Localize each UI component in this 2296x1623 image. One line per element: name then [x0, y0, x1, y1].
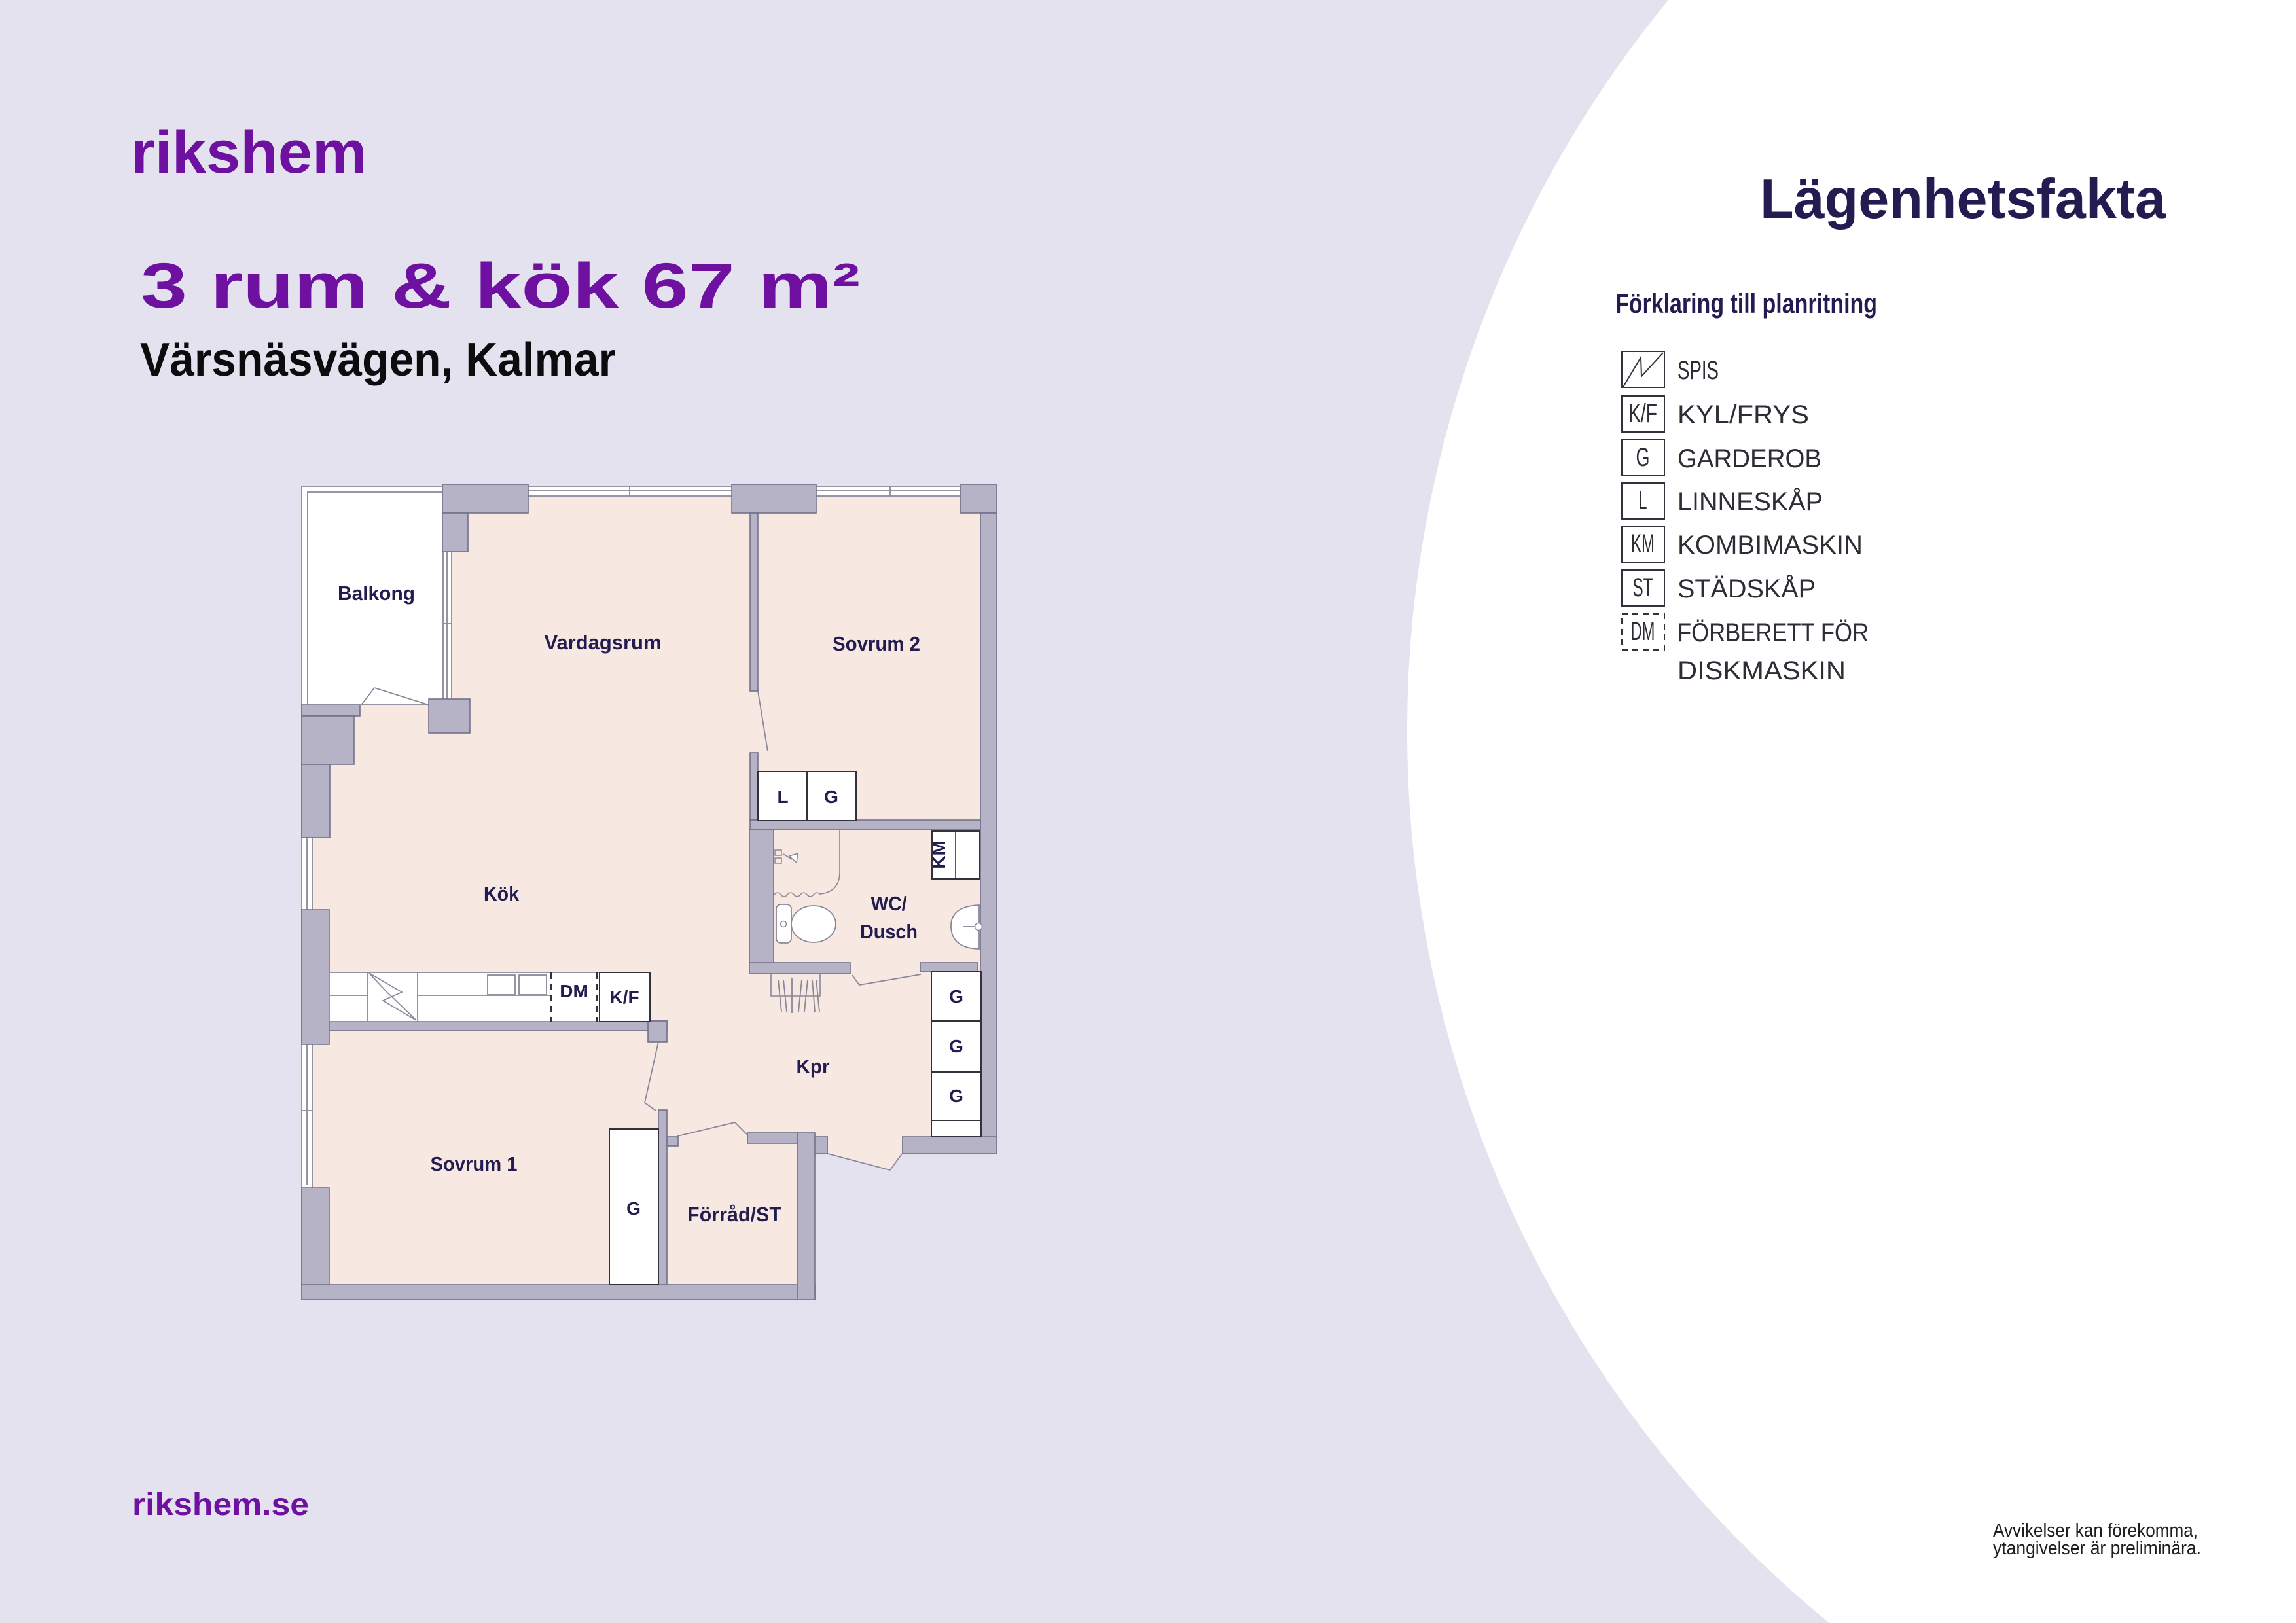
svg-text:K/F: K/F [1628, 399, 1657, 428]
svg-text:KM: KM [929, 840, 949, 869]
svg-text:KYL/FRYS: KYL/FRYS [1677, 401, 1809, 429]
svg-text:Förråd/ST: Förråd/ST [687, 1203, 781, 1226]
svg-text:G: G [949, 986, 963, 1007]
svg-text:KM: KM [1631, 529, 1655, 558]
svg-text:Sovrum 1: Sovrum 1 [431, 1152, 518, 1175]
svg-text:LINNESKÅP: LINNESKÅP [1677, 487, 1823, 516]
svg-text:DISKMASKIN: DISKMASKIN [1677, 656, 1846, 685]
svg-text:G: G [949, 1036, 963, 1056]
svg-text:Sovrum 2: Sovrum 2 [833, 632, 920, 655]
svg-text:K/F: K/F [609, 987, 639, 1007]
svg-text:G: G [1636, 443, 1650, 472]
svg-text:DM: DM [560, 981, 588, 1001]
svg-text:Värsnäsvägen, Kalmar: Värsnäsvägen, Kalmar [140, 334, 616, 386]
svg-text:rikshem: rikshem [131, 118, 367, 186]
svg-text:Kök: Kök [484, 882, 520, 905]
svg-text:WC/: WC/ [871, 892, 907, 915]
svg-text:DM: DM [1631, 617, 1655, 646]
svg-text:FÖRBERETT FÖR: FÖRBERETT FÖR [1677, 618, 1869, 647]
svg-text:Lägenhetsfakta: Lägenhetsfakta [1760, 168, 2166, 230]
svg-text:Vardagsrum: Vardagsrum [545, 631, 662, 654]
svg-text:L: L [1639, 486, 1647, 515]
svg-text:3 rum & kök 67 m²: 3 rum & kök 67 m² [141, 251, 860, 322]
svg-text:G: G [949, 1086, 963, 1106]
svg-text:Förklaring till planritning: Förklaring till planritning [1615, 288, 1877, 319]
svg-text:ytangivelser är preliminära.: ytangivelser är preliminära. [1993, 1538, 2201, 1559]
svg-text:rikshem.se: rikshem.se [132, 1488, 309, 1522]
svg-text:G: G [626, 1198, 641, 1219]
svg-text:G: G [824, 787, 838, 807]
svg-text:L: L [777, 787, 788, 807]
svg-text:ST: ST [1633, 573, 1653, 602]
svg-text:KOMBIMASKIN: KOMBIMASKIN [1677, 531, 1863, 560]
svg-text:STÄDSKÅP: STÄDSKÅP [1677, 574, 1816, 603]
svg-text:Kpr: Kpr [797, 1055, 830, 1078]
svg-text:SPIS: SPIS [1677, 356, 1719, 385]
svg-text:Dusch: Dusch [860, 920, 918, 943]
svg-text:GARDEROB: GARDEROB [1677, 444, 1821, 473]
svg-text:Balkong: Balkong [338, 582, 415, 605]
